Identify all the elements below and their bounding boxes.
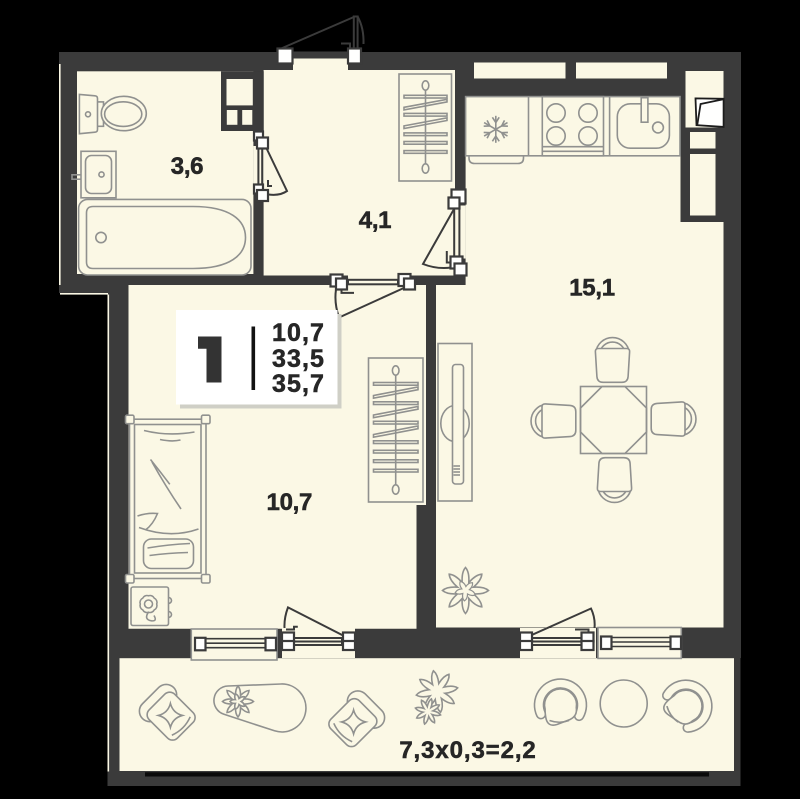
svg-text:35,7: 35,7	[272, 370, 325, 398]
svg-text:7,3x0,3=2,2: 7,3x0,3=2,2	[399, 737, 536, 764]
svg-text:4,1: 4,1	[359, 207, 391, 234]
svg-text:10,7: 10,7	[272, 319, 325, 347]
svg-text:15,1: 15,1	[569, 274, 615, 301]
svg-text:10,7: 10,7	[267, 489, 313, 516]
svg-text:33,5: 33,5	[272, 345, 325, 373]
svg-text:3,6: 3,6	[171, 153, 203, 180]
